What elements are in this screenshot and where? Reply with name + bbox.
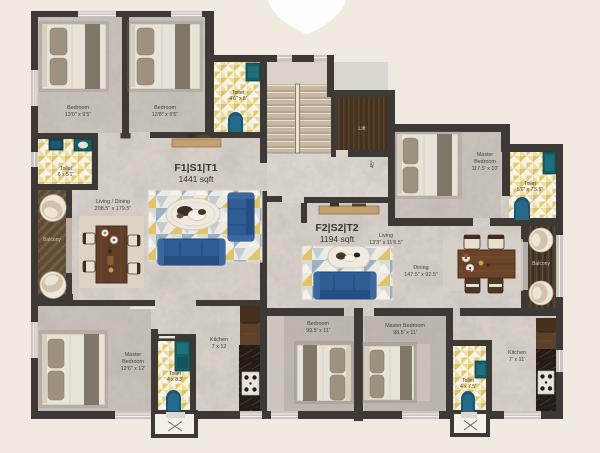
svg-text:4'6" x 8': 4'6" x 8' (229, 96, 246, 102)
svg-text:1194 sqft: 1194 sqft (320, 234, 355, 244)
svg-text:Bedroom: Bedroom (307, 321, 329, 327)
svg-text:6 x 5'1": 6 x 5'1" (58, 172, 75, 178)
svg-text:Bedroom: Bedroom (154, 105, 176, 111)
svg-text:117.5' x 10': 117.5' x 10' (472, 166, 499, 172)
svg-text:Kitchen: Kitchen (210, 337, 228, 343)
svg-text:98.5' x 11': 98.5' x 11' (393, 330, 417, 336)
svg-text:Master Bedroom: Master Bedroom (385, 323, 425, 329)
svg-text:7 x 12: 7 x 12 (212, 344, 227, 350)
svg-text:Living / Dining: Living / Dining (96, 199, 130, 205)
svg-text:Balcony: Balcony (532, 261, 550, 267)
svg-text:5'6" x 7'5.5": 5'6" x 7'5.5" (517, 187, 543, 193)
svg-text:Bedroom: Bedroom (474, 159, 496, 165)
svg-text:13'0" x 9'5": 13'0" x 9'5" (65, 112, 92, 118)
svg-text:Bedroom: Bedroom (122, 359, 144, 365)
svg-text:Master: Master (125, 352, 142, 358)
svg-text:99.5' x 11': 99.5' x 11' (306, 328, 330, 334)
svg-text:Lift: Lift (358, 126, 366, 132)
svg-text:Kitchen: Kitchen (508, 350, 526, 356)
svg-text:45°: 45° (370, 160, 376, 168)
svg-text:F1|S1|T1: F1|S1|T1 (174, 162, 217, 174)
svg-text:Living: Living (379, 233, 393, 239)
svg-text:147.5" x 92.5": 147.5" x 92.5" (404, 272, 438, 278)
svg-text:Balcony: Balcony (43, 237, 61, 243)
svg-text:13'8" x 9'5": 13'8" x 9'5" (152, 112, 179, 118)
svg-text:4 x 8.3': 4 x 8.3' (167, 377, 183, 383)
svg-text:Bedroom: Bedroom (67, 105, 89, 111)
svg-text:1441 sqft: 1441 sqft (179, 174, 215, 184)
svg-text:7' x 11': 7' x 11' (509, 357, 525, 363)
svg-text:208.5" x 179.5": 208.5" x 179.5" (95, 206, 132, 212)
svg-text:13'3" x 11'6.5": 13'3" x 11'6.5" (369, 240, 403, 246)
svg-text:Master: Master (477, 152, 494, 158)
svg-text:F2|S2|T2: F2|S2|T2 (315, 222, 358, 234)
svg-text:12'6" x 12': 12'6" x 12' (121, 366, 146, 372)
svg-text:4 x 7.5': 4 x 7.5' (460, 384, 476, 390)
svg-text:Dining: Dining (413, 265, 428, 271)
